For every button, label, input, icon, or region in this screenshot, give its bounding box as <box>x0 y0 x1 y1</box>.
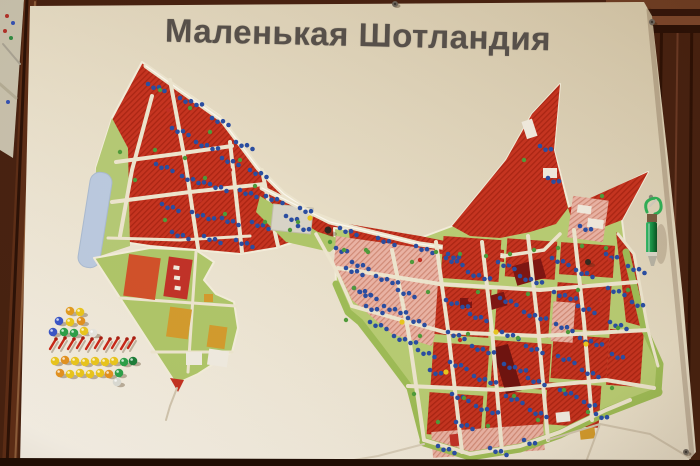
sold-lot-marker <box>526 376 531 381</box>
sold-lot-marker <box>451 255 456 260</box>
tree-dot <box>462 396 466 400</box>
yellow-marker <box>583 341 588 346</box>
sold-lot-marker <box>363 294 368 299</box>
sold-lot-marker <box>403 337 408 342</box>
sold-lot-marker <box>513 365 518 370</box>
sold-lot-marker <box>641 303 646 308</box>
sold-lot-marker <box>610 352 615 357</box>
sold-lot-marker <box>569 391 574 396</box>
push-pin <box>96 369 105 378</box>
sold-lot-marker <box>527 314 532 319</box>
tree-dot <box>616 326 620 330</box>
sold-lot-marker <box>379 278 384 283</box>
sold-lot-marker <box>511 333 516 338</box>
sold-lot-marker <box>642 271 647 276</box>
sold-lot-marker <box>566 263 571 268</box>
tree-dot <box>153 148 157 152</box>
sold-lot-marker <box>363 289 368 294</box>
sold-lot-marker <box>369 308 374 313</box>
sold-lot-marker <box>212 216 217 221</box>
sold-lot-marker <box>524 368 529 373</box>
push-pin <box>105 370 114 379</box>
sold-lot-marker <box>488 276 493 281</box>
sold-lot-marker <box>481 347 486 352</box>
sold-lot-marker <box>151 86 156 91</box>
sold-lot-marker <box>368 320 373 325</box>
sold-lot-marker <box>509 398 514 403</box>
sold-lot-marker <box>175 130 180 135</box>
poster-pin-center <box>394 3 396 5</box>
red-marker <box>458 338 462 342</box>
push-pin-highlight <box>71 330 74 333</box>
push-pin-highlight <box>81 328 84 331</box>
poster-pin-center <box>685 451 687 453</box>
sold-lot-marker <box>559 326 564 331</box>
sold-lot-marker <box>186 237 191 242</box>
sold-lot-marker <box>427 351 432 356</box>
sold-lot-marker <box>533 313 538 318</box>
tree-dot <box>586 410 590 414</box>
sold-lot-marker <box>216 146 221 151</box>
sold-lot-marker <box>236 163 241 168</box>
tree-dot <box>484 254 488 258</box>
tree-dot <box>536 418 540 422</box>
sold-lot-marker <box>436 444 441 449</box>
sold-lot-marker <box>501 264 506 269</box>
push-pin-highlight <box>111 358 114 361</box>
sold-lot-marker <box>520 401 525 406</box>
sold-lot-marker <box>234 238 239 243</box>
sold-lot-marker <box>397 338 402 343</box>
tree-dot <box>626 288 630 292</box>
sold-lot-marker <box>447 447 452 452</box>
sold-lot-marker <box>557 179 562 184</box>
red-marker <box>198 198 202 202</box>
tree-dot <box>203 176 207 180</box>
sold-lot-marker <box>455 396 460 401</box>
sold-lot-marker <box>176 209 181 214</box>
sold-lot-marker <box>604 252 609 257</box>
push-pin <box>115 369 124 378</box>
sold-lot-marker <box>392 334 397 339</box>
sold-lot-marker <box>466 270 471 275</box>
tree-dot <box>522 158 526 162</box>
sold-lot-marker <box>162 89 167 94</box>
sold-lot-marker <box>146 82 151 87</box>
sold-lot-marker <box>579 272 584 277</box>
sold-lot-marker <box>393 307 398 312</box>
sold-lot-marker <box>382 304 387 309</box>
push-pin <box>70 329 79 338</box>
sold-lot-marker <box>585 372 590 377</box>
sold-lot-marker <box>546 176 551 181</box>
sold-lot-marker <box>555 260 560 265</box>
sold-lot-marker <box>550 256 555 261</box>
red-marker <box>508 260 512 264</box>
sold-lot-marker <box>210 116 215 121</box>
sold-lot-marker <box>482 277 487 282</box>
sold-lot-marker <box>444 256 449 261</box>
sold-lot-marker <box>446 330 451 335</box>
sold-lot-marker <box>213 186 218 191</box>
tree-dot <box>344 318 348 322</box>
sold-lot-marker <box>369 293 374 298</box>
sold-lot-marker <box>189 99 194 104</box>
sold-lot-marker <box>207 238 212 243</box>
tree-dot <box>516 336 520 340</box>
rod-pin-head <box>99 336 103 340</box>
tree-dot <box>253 184 257 188</box>
tree-dot <box>434 250 438 254</box>
sold-lot-marker <box>637 267 642 272</box>
sold-lot-marker <box>396 288 401 293</box>
sold-lot-marker <box>631 268 636 273</box>
push-pin-highlight <box>78 318 81 321</box>
push-pin <box>110 357 119 366</box>
sold-lot-marker <box>202 180 207 185</box>
sold-lot-marker <box>245 143 250 148</box>
sold-lot-marker <box>298 206 303 211</box>
sold-lot-marker <box>538 144 543 149</box>
yellow-marker <box>399 319 404 324</box>
push-pin <box>76 369 85 378</box>
tree-dot <box>238 158 242 162</box>
sold-lot-marker <box>496 410 501 415</box>
sold-lot-marker <box>453 364 458 369</box>
push-pin <box>76 308 85 317</box>
tree-dot <box>576 288 580 292</box>
sold-lot-marker <box>381 240 386 245</box>
sold-lot-marker <box>539 411 544 416</box>
red-marker <box>228 168 232 172</box>
sold-lot-marker <box>406 316 411 321</box>
sold-lot-marker <box>190 210 195 215</box>
sold-lot-marker <box>373 324 378 329</box>
sold-lot-marker <box>585 271 590 276</box>
sold-lot-marker <box>477 378 482 383</box>
push-pin-highlight <box>72 358 75 361</box>
sold-lot-marker <box>502 362 507 367</box>
sold-lot-marker <box>205 143 210 148</box>
red-marker <box>468 298 472 302</box>
tree-dot <box>476 290 480 294</box>
sold-lot-marker <box>416 348 421 353</box>
tree-dot <box>610 386 614 390</box>
sold-lot-marker <box>474 404 479 409</box>
sold-lot-marker <box>455 259 460 264</box>
rod-pin-head <box>125 337 129 341</box>
sold-lot-marker <box>503 300 508 305</box>
sold-lot-marker <box>589 227 594 232</box>
sold-lot-marker <box>200 102 205 107</box>
sold-lot-marker <box>512 267 517 272</box>
sold-lot-marker <box>470 427 475 432</box>
sold-lot-marker <box>599 416 604 421</box>
sold-lot-marker <box>396 280 401 285</box>
sold-lot-marker <box>275 197 280 202</box>
sold-lot-marker <box>504 453 509 458</box>
sold-lot-marker <box>199 144 204 149</box>
sold-lot-marker <box>269 198 274 203</box>
sold-lot-marker <box>493 450 498 455</box>
red-marker <box>538 298 542 302</box>
sold-lot-marker <box>557 294 562 299</box>
sold-lot-marker <box>380 311 385 316</box>
tree-dot <box>556 246 560 250</box>
push-pin-highlight <box>67 371 70 374</box>
sold-lot-marker <box>181 233 186 238</box>
tree-dot <box>223 212 227 216</box>
sold-lot-marker <box>225 220 230 225</box>
sold-lot-marker <box>465 423 470 428</box>
sold-lot-marker <box>554 322 559 327</box>
sold-lot-marker <box>387 239 392 244</box>
sold-lot-marker <box>504 394 509 399</box>
push-pin-highlight <box>114 379 117 382</box>
sold-lot-marker <box>621 355 626 360</box>
push-pin-highlight <box>62 357 65 360</box>
red-marker <box>166 108 170 112</box>
sold-lot-marker <box>505 334 510 339</box>
sold-lot-marker <box>574 296 579 301</box>
push-pin-highlight <box>130 358 133 361</box>
sold-lot-marker <box>544 316 549 321</box>
sold-lot-marker <box>384 327 389 332</box>
sold-lot-marker <box>492 350 497 355</box>
push-pin <box>89 329 98 338</box>
sold-lot-marker <box>486 351 491 356</box>
sold-lot-marker <box>590 275 595 280</box>
sold-lot-marker <box>165 206 170 211</box>
sold-lot-marker <box>552 290 557 295</box>
sold-lot-marker <box>201 213 206 218</box>
sold-lot-marker <box>428 368 433 373</box>
sold-lot-marker <box>280 201 285 206</box>
sold-lot-marker <box>568 297 573 302</box>
sold-lot-marker <box>457 333 462 338</box>
sold-lot-marker <box>540 351 545 356</box>
sold-lot-marker <box>522 438 527 443</box>
sold-lot-marker <box>417 319 422 324</box>
push-pin <box>80 327 89 336</box>
sold-lot-marker <box>231 159 236 164</box>
tree-dot <box>328 240 332 244</box>
sold-lot-marker <box>374 297 379 302</box>
sold-lot-marker <box>488 381 493 386</box>
sold-lot-marker <box>231 219 236 224</box>
tree-dot <box>412 392 416 396</box>
push-pin-highlight <box>67 319 70 322</box>
push-pin-highlight <box>82 359 85 362</box>
sold-lot-marker <box>248 168 253 173</box>
sold-lot-marker <box>587 404 592 409</box>
sold-lot-marker <box>592 311 597 316</box>
sold-lot-marker <box>195 214 200 219</box>
push-pin-highlight <box>97 370 100 373</box>
sold-lot-marker <box>606 286 611 291</box>
sold-lot-marker <box>422 323 427 328</box>
red-marker <box>554 368 558 372</box>
push-pin <box>86 370 95 379</box>
sold-lot-marker <box>531 380 536 385</box>
tree-dot <box>604 246 608 250</box>
sold-lot-marker <box>593 403 598 408</box>
sold-lot-marker <box>533 441 538 446</box>
sold-lot-marker <box>490 411 495 416</box>
sold-lot-marker <box>208 182 213 187</box>
sold-lot-marker <box>414 244 419 249</box>
tree-dot <box>296 220 300 224</box>
sold-lot-marker <box>186 133 191 138</box>
sold-lot-marker <box>390 281 395 286</box>
sold-lot-marker <box>459 424 464 429</box>
sold-lot-marker <box>239 144 244 149</box>
push-pin-highlight <box>106 371 109 374</box>
sold-lot-marker <box>494 380 499 385</box>
sold-lot-marker <box>178 96 183 101</box>
sold-lot-marker <box>236 223 241 228</box>
sold-lot-marker <box>533 412 538 417</box>
sold-lot-marker <box>354 233 359 238</box>
sold-lot-marker <box>576 304 581 309</box>
tree-dot <box>263 220 267 224</box>
sold-lot-marker <box>630 300 635 305</box>
sold-lot-marker <box>194 103 199 108</box>
sold-lot-marker <box>226 123 231 128</box>
sold-lot-marker <box>243 192 248 197</box>
sold-lot-marker <box>361 263 366 268</box>
push-pin <box>56 369 65 378</box>
push-pin <box>49 328 58 337</box>
red-marker <box>608 258 612 262</box>
sold-lot-marker <box>170 169 175 174</box>
sold-lot-marker <box>578 224 583 229</box>
sold-lot-marker <box>582 400 587 405</box>
tree-dot <box>163 218 167 222</box>
sold-lot-marker <box>398 311 403 316</box>
rod-pin-head <box>72 337 76 341</box>
sold-lot-marker <box>615 356 620 361</box>
tree-dot <box>526 292 530 296</box>
tree-dot <box>352 286 356 290</box>
sold-lot-marker <box>500 330 505 335</box>
sold-lot-marker <box>470 344 475 349</box>
sold-lot-marker <box>408 341 413 346</box>
sold-lot-marker <box>213 237 218 242</box>
tree-dot <box>183 156 187 160</box>
sold-lot-marker <box>522 310 527 315</box>
rod-pin-head <box>90 337 94 341</box>
sold-lot-marker <box>529 348 534 353</box>
sold-lot-marker <box>449 260 454 265</box>
sold-lot-marker <box>535 347 540 352</box>
sold-lot-marker <box>366 267 371 272</box>
sold-lot-marker <box>254 195 259 200</box>
tree-dot <box>410 260 414 264</box>
sold-lot-marker <box>421 352 426 357</box>
tree-dot <box>486 424 490 428</box>
sold-lot-marker <box>570 329 575 334</box>
sold-lot-marker <box>349 229 354 234</box>
push-pin-highlight <box>90 330 93 333</box>
push-pin <box>120 358 129 367</box>
sold-lot-marker <box>374 274 379 279</box>
sold-lot-marker <box>580 368 585 373</box>
sold-lot-marker <box>449 302 454 307</box>
sold-lot-marker <box>608 320 613 325</box>
sold-lot-marker <box>392 243 397 248</box>
tree-dot <box>508 252 512 256</box>
sold-lot-marker <box>433 372 438 377</box>
red-marker <box>598 298 602 302</box>
sold-lot-marker <box>479 315 484 320</box>
sold-lot-marker <box>450 392 455 397</box>
tree-dot <box>436 420 440 424</box>
tree-dot <box>118 150 122 154</box>
sold-lot-marker <box>419 248 424 253</box>
red-marker <box>418 258 422 262</box>
sold-lot-marker <box>239 242 244 247</box>
push-pin-highlight <box>121 359 124 362</box>
push-pin <box>81 358 90 367</box>
sold-lot-marker <box>460 263 465 268</box>
sold-lot-marker <box>349 270 354 275</box>
push-pin-highlight <box>52 358 55 361</box>
sold-lot-marker <box>451 334 456 339</box>
sold-lot-marker <box>473 316 478 321</box>
push-pin <box>60 328 69 337</box>
sold-lot-marker <box>528 408 533 413</box>
push-pin-highlight <box>57 370 60 373</box>
sold-lot-marker <box>540 280 545 285</box>
sold-lot-marker <box>238 188 243 193</box>
sold-lot-marker <box>518 274 523 279</box>
sold-lot-marker <box>407 291 412 296</box>
sold-lot-marker <box>210 147 215 152</box>
push-pin <box>51 357 60 366</box>
sold-lot-marker <box>556 354 561 359</box>
sold-lot-marker <box>219 185 224 190</box>
sold-lot-marker <box>170 126 175 131</box>
sold-lot-marker <box>334 246 339 251</box>
push-pin-highlight <box>67 308 70 311</box>
sold-lot-marker <box>448 360 453 365</box>
sold-lot-marker <box>441 448 446 453</box>
sold-lot-marker <box>581 308 586 313</box>
sold-lot-marker <box>561 259 566 264</box>
rod-pin-head <box>132 336 136 340</box>
sold-lot-marker <box>303 210 308 215</box>
sold-lot-marker <box>253 172 258 177</box>
sold-lot-marker <box>499 449 504 454</box>
sold-lot-marker <box>624 327 629 332</box>
sold-lot-marker <box>452 451 457 456</box>
sold-lot-marker <box>488 446 493 451</box>
sold-lot-marker <box>355 269 360 274</box>
sold-lot-marker <box>355 264 360 269</box>
sold-lot-marker <box>412 295 417 300</box>
sold-lot-marker <box>496 260 501 265</box>
sold-lot-marker <box>215 120 220 125</box>
push-pin-highlight <box>50 329 53 332</box>
tree-dot <box>580 244 584 248</box>
sold-lot-marker <box>605 415 610 420</box>
push-pin <box>66 370 75 379</box>
sold-lot-marker <box>563 293 568 298</box>
push-pin <box>66 307 75 316</box>
sold-lot-marker <box>622 293 627 298</box>
yellow-marker <box>307 215 312 220</box>
